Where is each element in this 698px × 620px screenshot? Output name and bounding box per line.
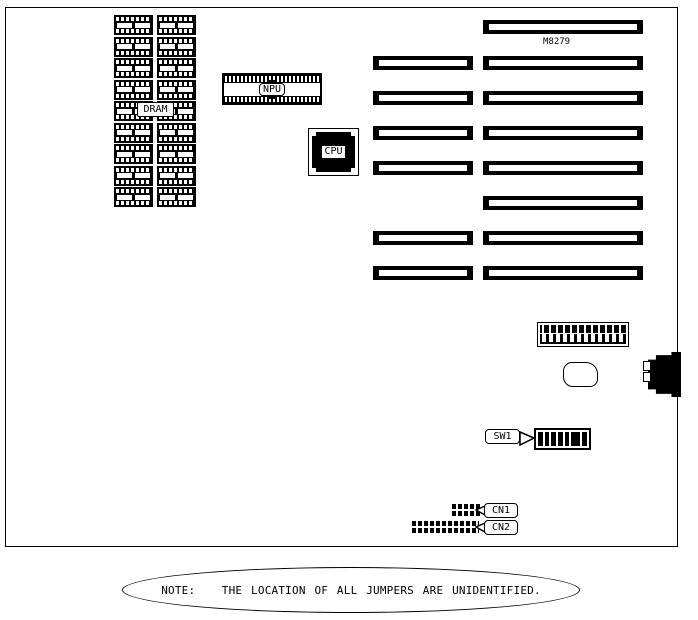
expansion-slot [483, 161, 643, 175]
dram-chip [114, 80, 153, 100]
dram-chip [114, 144, 153, 164]
m8279-chip-label: M8279 [543, 37, 570, 47]
cpu-corner-notch [311, 131, 316, 136]
dram-label: DRAM [137, 102, 174, 117]
expansion-slot [483, 20, 643, 34]
cpu-label: CPU [321, 145, 345, 159]
cpu-chip: CPU [308, 128, 359, 176]
dip-switch-segment [538, 432, 543, 446]
dram-chip [157, 58, 196, 78]
power-connector-pins-bottom [540, 334, 626, 344]
oscillator-outline [563, 362, 598, 387]
expansion-slot [483, 196, 643, 210]
dram-chip [114, 123, 153, 143]
dram-chip [157, 15, 196, 35]
dram-chip [157, 80, 196, 100]
expansion-slot [373, 91, 473, 105]
dip-switch-segment [582, 432, 587, 446]
cn2-pin-header [412, 521, 479, 533]
cpu-corner-notch [351, 168, 356, 173]
expansion-slot [483, 91, 643, 105]
expansion-slot [373, 126, 473, 140]
sw1-label: SW1 [485, 429, 520, 444]
cn2-label: CN2 [484, 520, 518, 535]
expansion-slot [483, 56, 643, 70]
dram-chip [114, 58, 153, 78]
dram-chip [157, 166, 196, 186]
dram-chip [157, 144, 196, 164]
dip-switch-segment [558, 432, 563, 446]
expansion-slot [373, 161, 473, 175]
expansion-slot [483, 266, 643, 280]
dram-chip [157, 187, 196, 207]
sw1-dip-switch [534, 428, 591, 450]
cn1-label: CN1 [484, 503, 518, 518]
expansion-slot [373, 266, 473, 280]
dram-chip [114, 37, 153, 57]
dram-chip [114, 187, 153, 207]
cpu-package: CPU [312, 132, 355, 172]
power-connector [537, 322, 629, 347]
expansion-slot [483, 231, 643, 245]
cpu-corner-notch [311, 168, 316, 173]
dram-chip [157, 123, 196, 143]
expansion-slot [373, 231, 473, 245]
dip-switch-segment [551, 432, 556, 446]
dram-chip [114, 166, 153, 186]
npu-label: NPU [259, 83, 285, 96]
dip-switch-segment [571, 432, 580, 446]
npu-body: NPU [224, 83, 320, 96]
keyboard-connector-pin [643, 361, 651, 371]
note-text: NOTE: THE LOCATION OF ALL JUMPERS ARE UN… [161, 584, 541, 597]
note-ellipse: NOTE: THE LOCATION OF ALL JUMPERS ARE UN… [122, 567, 580, 613]
expansion-slot [483, 126, 643, 140]
dram-chip [157, 37, 196, 57]
dip-switch-segment [545, 432, 550, 446]
dram-chip [114, 15, 153, 35]
dip-switch-segment [565, 432, 570, 446]
sw1-pointer-arrow [519, 430, 535, 447]
cpu-corner-notch [351, 131, 356, 136]
expansion-slot [373, 56, 473, 70]
power-connector-pins-top [540, 325, 626, 333]
npu-socket: NPU [222, 73, 322, 105]
keyboard-connector-pin [643, 372, 651, 382]
